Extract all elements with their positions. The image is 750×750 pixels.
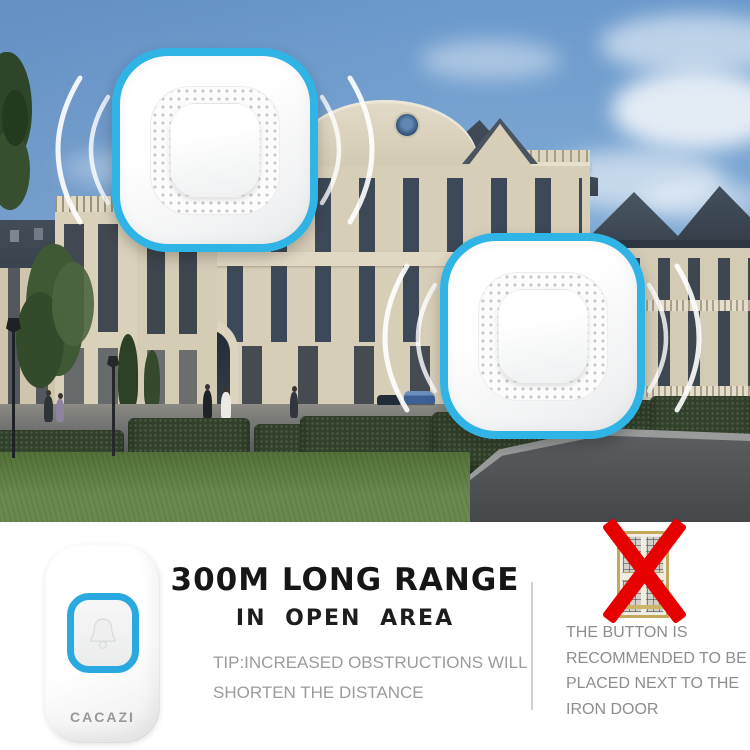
tip-line: SHORTEN THE DISTANCE bbox=[213, 678, 528, 708]
receiver-front-button bbox=[498, 289, 588, 383]
speaker-grille bbox=[150, 86, 280, 215]
bell-button bbox=[67, 593, 139, 673]
vertical-divider bbox=[531, 582, 533, 710]
note-line: PLACED NEXT TO THE bbox=[566, 671, 747, 697]
note-line: RECOMMENDED TO BE bbox=[566, 646, 747, 672]
brand-label: CACAZI bbox=[45, 709, 160, 725]
subheadline: IN OPEN AREA bbox=[158, 606, 532, 631]
doorbell-receiver-2 bbox=[440, 233, 645, 439]
doorbell-receiver-1 bbox=[112, 48, 318, 252]
door-note: THE BUTTON IS RECOMMENDED TO BE PLACED N… bbox=[566, 620, 747, 722]
tip-line: TIP:INCREASED OBSTRUCTIONS WILL bbox=[213, 648, 528, 678]
red-x-icon bbox=[606, 521, 682, 621]
note-line: THE BUTTON IS bbox=[566, 620, 747, 646]
doorbell-button-device: CACAZI bbox=[45, 545, 160, 743]
note-line: IRON DOOR bbox=[566, 697, 747, 723]
tip-text: TIP:INCREASED OBSTRUCTIONS WILL SHORTEN … bbox=[213, 648, 528, 708]
receiver-front-button bbox=[170, 103, 260, 197]
bell-icon bbox=[85, 613, 121, 653]
product-banner: CACAZI 300M LONG RANGE IN OPEN AREA TIP:… bbox=[0, 0, 750, 750]
building-photo bbox=[0, 0, 750, 522]
speaker-grille bbox=[478, 272, 608, 401]
headline: 300M LONG RANGE bbox=[158, 562, 532, 598]
